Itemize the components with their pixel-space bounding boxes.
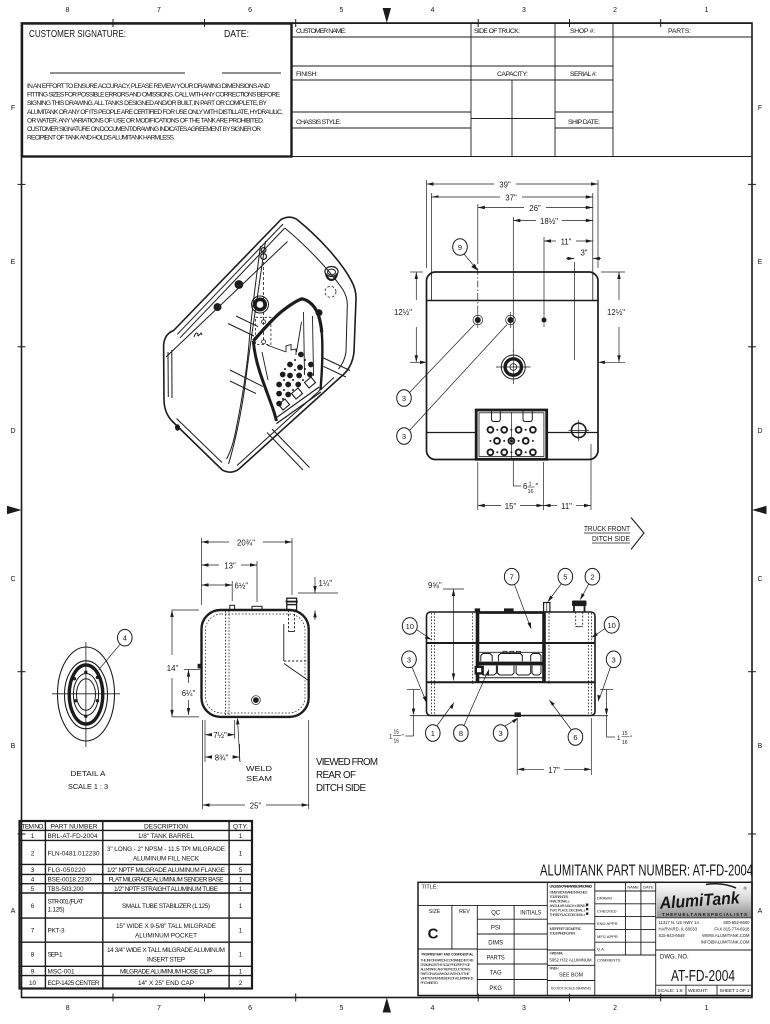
svg-text:5: 5 xyxy=(339,1005,343,1012)
svg-text:QC: QC xyxy=(491,911,501,917)
svg-text:THREE PLACE DECIMAL ±: THREE PLACE DECIMAL ± xyxy=(550,913,586,917)
svg-text:11317 N. US HWY 14: 11317 N. US HWY 14 xyxy=(659,920,700,925)
svg-text:CAPACITY:: CAPACITY: xyxy=(497,71,528,78)
svg-text:39": 39" xyxy=(499,181,511,190)
svg-text:1: 1 xyxy=(31,833,35,840)
svg-text:AT-FD-2004: AT-FD-2004 xyxy=(671,968,735,985)
svg-text:FLN-0481.012230: FLN-0481.012230 xyxy=(48,850,100,857)
svg-text:MATERIAL: MATERIAL xyxy=(550,952,564,956)
svg-text:DIMS: DIMS xyxy=(488,941,503,947)
svg-text:INFO@ALUMITANK.COM: INFO@ALUMITANK.COM xyxy=(701,940,750,945)
svg-text:3: 3 xyxy=(402,432,406,441)
svg-text:D: D xyxy=(757,428,762,435)
svg-text:1: 1 xyxy=(239,903,243,910)
svg-text:PKT-3: PKT-3 xyxy=(48,928,65,935)
svg-text:15: 15 xyxy=(394,730,400,736)
svg-text:17": 17" xyxy=(548,766,560,775)
svg-text:8: 8 xyxy=(31,952,35,959)
svg-text:REV: REV xyxy=(459,909,470,915)
svg-text:QTY.: QTY. xyxy=(233,823,248,830)
svg-text:INITIALS: INITIALS xyxy=(520,911,541,917)
svg-text:10: 10 xyxy=(406,622,414,631)
svg-text:SEAM: SEAM xyxy=(246,774,272,783)
svg-text:2: 2 xyxy=(613,1005,617,1012)
svg-text:PSI: PSI xyxy=(491,926,501,932)
svg-text:7½": 7½" xyxy=(213,731,227,740)
svg-text:DRAWN: DRAWN xyxy=(597,896,612,901)
svg-text:BSE-0018.2230: BSE-0018.2230 xyxy=(48,877,92,884)
svg-text:1/8" TANK BARREL: 1/8" TANK BARREL xyxy=(138,833,194,840)
svg-text:INSERT STEP: INSERT STEP xyxy=(147,957,185,964)
svg-text:4: 4 xyxy=(31,877,35,884)
svg-text:DWG. NO.: DWG. NO. xyxy=(660,955,689,961)
svg-text:Q.A.: Q.A. xyxy=(597,947,605,952)
svg-text:CUSTOMER SIGNATURE ON DOCUMENT: CUSTOMER SIGNATURE ON DOCUMENT/DRAWING I… xyxy=(27,126,261,133)
svg-text:ALUMINUM POCKET: ALUMINUM POCKET xyxy=(135,933,197,940)
svg-text:6¼": 6¼" xyxy=(182,689,196,698)
svg-text:THE INFORMATION CONTAINED IN T: THE INFORMATION CONTAINED IN THIS xyxy=(421,959,475,963)
svg-text:1: 1 xyxy=(239,886,243,893)
svg-text:37": 37" xyxy=(505,194,517,203)
svg-text:MFG APPR.: MFG APPR. xyxy=(597,934,619,939)
svg-text:ENG APPR.: ENG APPR. xyxy=(597,921,619,926)
svg-text:1: 1 xyxy=(239,850,243,857)
svg-text:7: 7 xyxy=(31,928,35,935)
svg-text:11": 11" xyxy=(561,502,572,511)
svg-text:6: 6 xyxy=(573,733,577,742)
svg-text:5: 5 xyxy=(339,7,343,14)
svg-text:F: F xyxy=(11,105,15,112)
svg-text:1: 1 xyxy=(617,735,621,742)
svg-text:PARTS:: PARTS: xyxy=(668,28,691,35)
svg-text:20¾": 20¾" xyxy=(237,539,255,548)
svg-text:FRACTIONAL ±: FRACTIONAL ± xyxy=(550,900,570,904)
svg-text:1: 1 xyxy=(239,969,243,976)
svg-text:FINISH: FINISH xyxy=(550,967,559,971)
svg-text:DATE: DATE xyxy=(643,885,654,890)
svg-text:8: 8 xyxy=(459,729,463,738)
svg-text:FLG-050220: FLG-050220 xyxy=(48,867,86,874)
svg-text:1¼": 1¼" xyxy=(319,579,333,588)
svg-text:2: 2 xyxy=(613,7,617,14)
svg-text:1: 1 xyxy=(239,877,243,884)
svg-text:1/2" NPTF STRAIGHT ALUMINUM TU: 1/2" NPTF STRAIGHT ALUMINUM TUBE xyxy=(114,886,218,893)
svg-text:6: 6 xyxy=(248,1005,252,1012)
svg-text:14" X 25" END CAP: 14" X 25" END CAP xyxy=(138,980,194,987)
svg-text:12½": 12½" xyxy=(607,308,625,317)
svg-text:3" LONG - 2" NPSM - 11.5 TPI M: 3" LONG - 2" NPSM - 11.5 TPI MILGRADE xyxy=(107,846,225,853)
svg-text:CHASSIS STYLE:: CHASSIS STYLE: xyxy=(296,119,341,126)
svg-text:CHECKED: CHECKED xyxy=(597,908,617,913)
svg-text:8: 8 xyxy=(66,1005,70,1012)
svg-text:ANGULAR: MACH ± BEND ±: ANGULAR: MACH ± BEND ± xyxy=(550,904,588,908)
svg-text:IN AN EFFORT TO ENSURE ACCURAC: IN AN EFFORT TO ENSURE ACCURACY, PLEASE … xyxy=(27,83,270,90)
svg-text:PROHIBITED.: PROHIBITED. xyxy=(421,981,439,985)
svg-text:3: 3 xyxy=(402,394,406,403)
svg-text:SCALE: 1:8: SCALE: 1:8 xyxy=(658,988,683,994)
svg-text:8: 8 xyxy=(66,7,70,14)
svg-text:BRL-AT-FD-2004: BRL-AT-FD-2004 xyxy=(48,833,98,840)
svg-text:HARVARD, IL 60033: HARVARD, IL 60033 xyxy=(659,927,698,932)
svg-text:6½": 6½" xyxy=(235,582,249,591)
svg-text:WEIGHT:: WEIGHT: xyxy=(688,988,708,994)
svg-text:B: B xyxy=(11,743,16,750)
svg-text:TAG: TAG xyxy=(490,971,502,977)
svg-text:RECIPIENT OF TANK AND HOLDS AL: RECIPIENT OF TANK AND HOLDS ALUMITANK HA… xyxy=(27,135,175,142)
svg-text:DRAWING IS THE SOLE PROPERTY O: DRAWING IS THE SOLE PROPERTY OF xyxy=(421,963,472,967)
svg-text:2: 2 xyxy=(590,573,594,582)
svg-text:CUSTOMER SIGNATURE:: CUSTOMER SIGNATURE: xyxy=(29,28,126,40)
svg-text:DIMENSIONS ARE IN INCHES: DIMENSIONS ARE IN INCHES xyxy=(550,891,589,895)
svg-text:PARTS: PARTS xyxy=(487,956,505,962)
svg-text:5: 5 xyxy=(239,867,243,874)
svg-text:16: 16 xyxy=(622,740,628,746)
svg-text:C: C xyxy=(10,576,15,583)
svg-text:1: 1 xyxy=(239,952,243,959)
svg-text:16: 16 xyxy=(394,739,400,745)
svg-text:ALUMITANK PART NUMBER: AT-FD-2: ALUMITANK PART NUMBER: AT-FD-2004 xyxy=(540,863,753,880)
svg-text:B: B xyxy=(758,743,763,750)
svg-text:SIZE: SIZE xyxy=(429,909,441,915)
svg-text:15: 15 xyxy=(622,731,628,737)
svg-text:3: 3 xyxy=(407,655,411,664)
svg-text:": " xyxy=(536,482,539,491)
svg-text:STR-001 (FLAT: STR-001 (FLAT xyxy=(48,899,84,906)
svg-text:": " xyxy=(630,735,632,742)
svg-text:SEP-1: SEP-1 xyxy=(48,952,63,959)
svg-text:SCALE 1 : 3: SCALE 1 : 3 xyxy=(68,782,108,791)
svg-text:1: 1 xyxy=(704,7,708,14)
svg-text:1: 1 xyxy=(239,928,243,935)
svg-text:3: 3 xyxy=(522,7,526,14)
svg-text:3: 3 xyxy=(612,655,616,664)
svg-text:3: 3 xyxy=(31,867,35,874)
svg-text:WELD: WELD xyxy=(246,764,273,773)
svg-text:5052 H32 ALUMINUM: 5052 H32 ALUMINUM xyxy=(550,958,592,964)
svg-text:ALUMITANK OR ANY OF ITS PEOPLE: ALUMITANK OR ANY OF ITS PEOPLE ARE CERTI… xyxy=(27,109,283,116)
svg-text:SIGNING THIS DRAWING. ALL TAN: SIGNING THIS DRAWING. ALL TANKS DESIGNED… xyxy=(27,100,268,107)
svg-text:3: 3 xyxy=(499,729,503,738)
svg-text:DITCH SIDE: DITCH SIDE xyxy=(592,534,630,543)
svg-text:TITLE:: TITLE: xyxy=(422,885,439,891)
svg-text:T H E F U E L T A N K S: T H E F U E L T A N K S P E C I A L I S … xyxy=(662,912,747,917)
svg-text:8¾": 8¾" xyxy=(215,754,229,763)
svg-text:A: A xyxy=(11,908,16,915)
svg-text:18½": 18½" xyxy=(540,217,558,226)
svg-text:SERIAL #:: SERIAL #: xyxy=(570,71,597,78)
svg-text:26": 26" xyxy=(529,204,541,213)
svg-text:SHOP #:: SHOP #: xyxy=(570,28,595,35)
svg-text:10: 10 xyxy=(608,621,616,630)
svg-text:10: 10 xyxy=(29,980,37,987)
svg-text:SMALL TUBE STABILIZER (1.125): SMALL TUBE STABILIZER (1.125) xyxy=(122,903,210,910)
svg-text:815-943-6649: 815-943-6649 xyxy=(659,933,686,938)
svg-text:6: 6 xyxy=(248,7,252,14)
svg-text:D: D xyxy=(10,428,15,435)
svg-text:9: 9 xyxy=(458,243,462,252)
svg-text:SHIP DATE:: SHIP DATE: xyxy=(568,119,600,126)
svg-text:NAME: NAME xyxy=(627,885,639,890)
svg-text:2: 2 xyxy=(31,850,35,857)
svg-text:1: 1 xyxy=(239,833,243,840)
svg-text:7: 7 xyxy=(510,573,514,582)
svg-text:FITTING SIZES FOR POSSIBLE ERR: FITTING SIZES FOR POSSIBLE ERRORS AND OM… xyxy=(27,92,281,99)
svg-text:3: 3 xyxy=(522,1005,526,1012)
svg-text:9: 9 xyxy=(31,969,35,976)
svg-text:C: C xyxy=(428,926,439,943)
svg-text:2: 2 xyxy=(239,980,243,987)
svg-text:C: C xyxy=(757,576,762,583)
svg-text:WWW.ALUMITANK.COM: WWW.ALUMITANK.COM xyxy=(702,933,750,938)
svg-text:TBS-503.200: TBS-503.200 xyxy=(48,886,84,893)
svg-text:CUSTOMER NAME:: CUSTOMER NAME: xyxy=(296,28,346,35)
svg-text:UNLESS OTHERWISE SPECIFIED:: UNLESS OTHERWISE SPECIFIED: xyxy=(550,885,593,889)
svg-text:DATE:: DATE: xyxy=(224,28,249,40)
svg-text:ECP-1425 CENTER: ECP-1425 CENTER xyxy=(48,980,100,987)
svg-text:14": 14" xyxy=(167,664,179,673)
svg-text:E: E xyxy=(11,259,16,266)
svg-text:A: A xyxy=(758,908,763,915)
svg-text:1.125): 1.125) xyxy=(48,907,65,914)
svg-text:INTERPRET GEOMETRIC: INTERPRET GEOMETRIC xyxy=(550,927,582,931)
svg-text:5: 5 xyxy=(563,573,567,582)
svg-text:FLAT MILGRADE ALUMINUM SENDER: FLAT MILGRADE ALUMINUM SENDER BASE xyxy=(109,877,224,884)
svg-text:PART NUMBER: PART NUMBER xyxy=(51,823,98,830)
svg-text:FINISH:: FINISH: xyxy=(296,71,318,78)
svg-text:25": 25" xyxy=(250,802,262,811)
svg-text:4: 4 xyxy=(123,634,127,643)
svg-text:13": 13" xyxy=(224,562,236,571)
svg-text:1/2" NPTF MILGRADE ALUMINUM FL: 1/2" NPTF MILGRADE ALUMINUM FLANGE xyxy=(107,867,225,874)
svg-text:SIDE OF TRUCK:: SIDE OF TRUCK: xyxy=(474,28,520,35)
svg-text:15": 15" xyxy=(505,502,517,511)
svg-text:12½": 12½" xyxy=(394,308,412,317)
svg-text:DETAIL A: DETAIL A xyxy=(71,769,107,778)
svg-text:PKG: PKG xyxy=(489,986,502,992)
svg-text:FAX 815-774-6918: FAX 815-774-6918 xyxy=(714,927,750,932)
svg-text:14 3/4" WIDE X TALL MILGRADE A: 14 3/4" WIDE X TALL MILGRADE ALUMINUM xyxy=(107,947,225,954)
svg-text:MILGRADE ALUMINUM HOSE CLIP: MILGRADE ALUMINUM HOSE CLIP xyxy=(120,969,212,976)
svg-text:4: 4 xyxy=(431,7,435,14)
svg-text:15" WIDE X 9-5/8" TALL MILGRAD: 15" WIDE X 9-5/8" TALL MILGRADE xyxy=(116,923,216,930)
svg-text:REAR OF: REAR OF xyxy=(316,770,356,781)
svg-text:TOLERANCES:: TOLERANCES: xyxy=(550,895,569,899)
svg-text:OR WATER. ANY VARIATIONS OF US: OR WATER. ANY VARIATIONS OF USE OR MODIF… xyxy=(27,117,264,124)
svg-text:MSC-001: MSC-001 xyxy=(48,969,75,976)
svg-text:ALUMINUM FILL NECK: ALUMINUM FILL NECK xyxy=(133,855,200,862)
svg-text:SHEET 1 OF 1: SHEET 1 OF 1 xyxy=(720,988,750,994)
svg-text:PART OR AS A WHOLE WITHOUT THE: PART OR AS A WHOLE WITHOUT THE xyxy=(421,972,471,976)
svg-text:PROPRIETARY AND CONFIDENTIAL: PROPRIETARY AND CONFIDENTIAL xyxy=(422,952,474,957)
svg-text:9⅝": 9⅝" xyxy=(428,581,442,590)
svg-text:1: 1 xyxy=(704,1005,708,1012)
svg-text:E: E xyxy=(758,259,763,266)
svg-text:7: 7 xyxy=(157,1005,161,1012)
svg-text:WRITTEN PERMISSION OF ALUMITAN: WRITTEN PERMISSION OF ALUMITANK IS xyxy=(421,977,475,981)
svg-text:": " xyxy=(402,734,404,741)
svg-text:TRUCK FRONT: TRUCK FRONT xyxy=(584,524,631,533)
svg-text:TOLERANCING PER:: TOLERANCING PER: xyxy=(550,932,576,936)
svg-text:F: F xyxy=(758,105,762,112)
svg-text:4: 4 xyxy=(431,1005,435,1012)
svg-text:ALUMITANK. ANY REPRODUCTION I: ALUMITANK. ANY REPRODUCTION IN xyxy=(421,968,471,972)
svg-text:TWO PLACE DECIMAL ±: TWO PLACE DECIMAL ± xyxy=(550,909,586,913)
svg-text:16: 16 xyxy=(528,489,534,495)
svg-text:DO NOT SCALE DRAWING: DO NOT SCALE DRAWING xyxy=(551,986,591,991)
svg-text:5: 5 xyxy=(31,886,35,893)
svg-text:11": 11" xyxy=(561,238,572,247)
svg-text:1: 1 xyxy=(431,729,435,738)
svg-text:COMMENTS:: COMMENTS: xyxy=(597,958,621,963)
svg-text:DITCH SIDE: DITCH SIDE xyxy=(316,783,366,794)
svg-text:800-652-6600: 800-652-6600 xyxy=(723,920,750,925)
svg-text:SEE BOM: SEE BOM xyxy=(559,973,583,979)
svg-text:VIEWED FROM: VIEWED FROM xyxy=(316,757,378,768)
svg-text:6: 6 xyxy=(31,903,35,910)
svg-text:DESCRIPTION: DESCRIPTION xyxy=(144,823,188,830)
svg-text:7: 7 xyxy=(157,7,161,14)
svg-text:1: 1 xyxy=(529,482,532,488)
svg-text:1: 1 xyxy=(389,734,393,741)
svg-text:3": 3" xyxy=(580,249,587,258)
svg-text:ITEM NO.: ITEM NO. xyxy=(21,823,45,830)
